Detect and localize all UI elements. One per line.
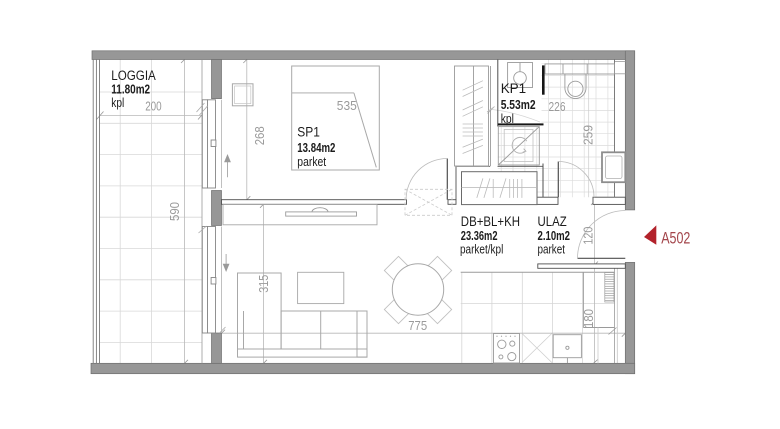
svg-text:parket/kpl: parket/kpl bbox=[460, 243, 503, 257]
svg-text:13.84m2: 13.84m2 bbox=[297, 140, 335, 155]
svg-text:23.36m2: 23.36m2 bbox=[461, 228, 498, 243]
svg-text:315: 315 bbox=[256, 275, 271, 293]
svg-text:DB+BL+KH: DB+BL+KH bbox=[461, 214, 520, 229]
svg-text:SP1: SP1 bbox=[297, 124, 320, 139]
svg-text:268: 268 bbox=[252, 126, 267, 145]
svg-text:259: 259 bbox=[581, 125, 596, 145]
svg-text:kpl: kpl bbox=[501, 112, 514, 126]
svg-text:11.80m2: 11.80m2 bbox=[111, 82, 150, 97]
svg-text:120: 120 bbox=[580, 227, 595, 245]
svg-text:kpl: kpl bbox=[111, 96, 124, 110]
svg-text:226: 226 bbox=[549, 99, 566, 114]
svg-text:590: 590 bbox=[167, 202, 182, 221]
svg-text:KP1: KP1 bbox=[501, 81, 527, 96]
svg-text:A502: A502 bbox=[661, 230, 690, 248]
svg-text:180: 180 bbox=[581, 309, 596, 328]
svg-text:parket: parket bbox=[538, 243, 566, 257]
svg-text:775: 775 bbox=[408, 318, 427, 333]
svg-text:2.10m2: 2.10m2 bbox=[538, 228, 571, 243]
svg-text:535: 535 bbox=[337, 98, 357, 113]
svg-text:200: 200 bbox=[145, 99, 162, 114]
svg-text:5.53m2: 5.53m2 bbox=[501, 97, 536, 112]
svg-text:ULAZ: ULAZ bbox=[538, 214, 567, 229]
svg-text:parket: parket bbox=[297, 155, 326, 169]
